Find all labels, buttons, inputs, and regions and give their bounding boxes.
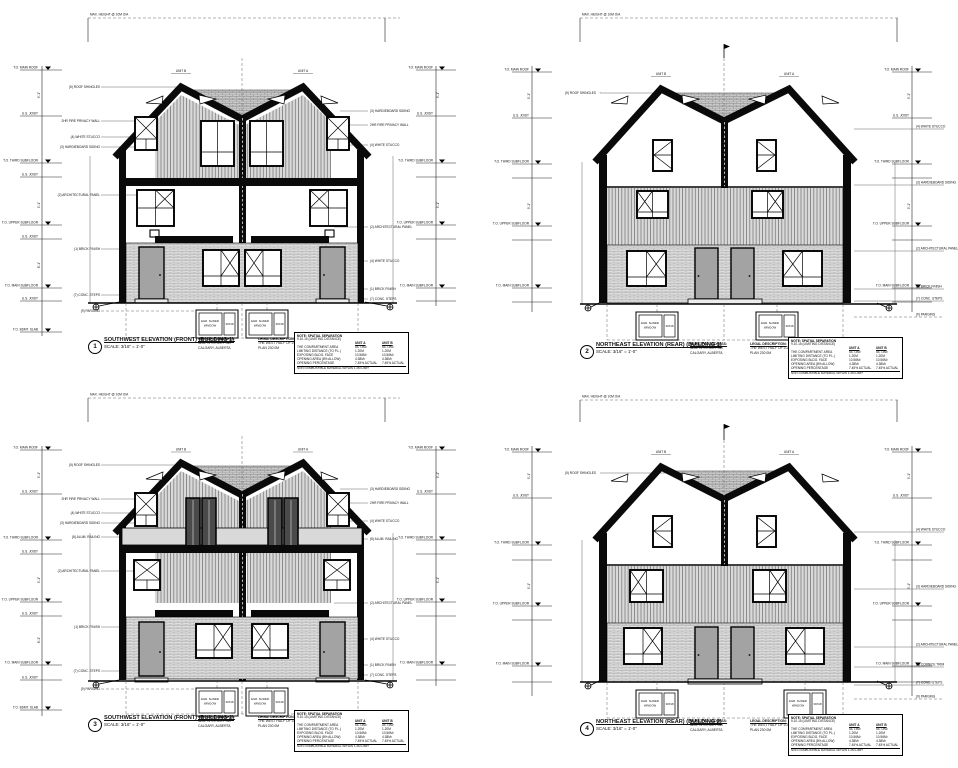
second-floor-window-right — [324, 560, 350, 590]
level-label: T.O. MAIN SUBFLOOR — [5, 284, 39, 288]
level-label: T.O. MAIN ROOF — [504, 68, 529, 72]
dim-label: 9'-1" — [37, 92, 41, 98]
roof-slope-arrow — [321, 472, 338, 480]
callout-label: (7) CONC. STEPS — [370, 673, 396, 677]
table-row: OPENING PERCENTAGE7.45% ACTUAL7.45% ACTU… — [791, 744, 900, 748]
second-floor-window-right — [310, 190, 347, 226]
level-label: T.O. MAIN ROOF — [884, 448, 909, 452]
egress-window-label: EGR. SLIDER — [201, 697, 219, 701]
spatial-separation-table: NOTE: SPATIAL SEPARATION 9.10.15 (LIMITI… — [788, 337, 903, 379]
separation-rows: THE COMPARTMENT AREA54.73M²54.73M²LIMITI… — [297, 724, 406, 744]
address-line: CALGARY, ALBERTA — [198, 346, 235, 350]
municipal-address-block: MUNICIPAL ADDRESS: 4204 75 STREET SW CAL… — [198, 715, 235, 728]
legal-line: THE WEST HALF OF LOT 2 — [750, 346, 793, 350]
right-dimension-column: T.O. MAIN ROOF U.S. JOIST T.O. THIRD SUB… — [397, 66, 456, 307]
building-drawing: EGR. SLIDER WINDOW 30X18 EGR. SLIDER WIN… — [88, 436, 397, 716]
egress-window-label: EGR. SLIDER — [251, 697, 269, 701]
building-drawing: EGR. SLIDER WINDOW 30X18 EGR. SLIDER WIN… — [580, 44, 897, 340]
dim-label: 9'-1" — [436, 577, 440, 583]
level-label: U.S. JOIST — [22, 112, 38, 116]
entry-door-left — [139, 622, 164, 676]
elevation-sheet: MAX. HEIGHT @ 10M O/A T.O. MAIN ROOF U.S… — [0, 0, 958, 768]
level-label: T.O. THIRD SUBFLOOR — [874, 160, 910, 164]
vent — [325, 230, 334, 237]
egress-window-label: EGR. SLIDER — [641, 321, 659, 325]
roof-slope-arrow — [822, 474, 839, 482]
rear-door-right — [731, 627, 754, 679]
callout-label: (4) WHITE STUCCO — [71, 511, 101, 515]
callout-label: (6) CORNICE TRIM — [916, 663, 944, 667]
separation-footer: NON COMBUSTIBLE MATERIAL WITHIN 1.2M LIM… — [791, 371, 900, 376]
level-label: U.S. JOIST — [22, 676, 38, 680]
municipal-address-block: MUNICIPAL ADDRESS: 4204 75 STREET SW CAL… — [198, 337, 235, 350]
main-floor-window-left — [196, 624, 232, 658]
third-floor-window-right — [250, 121, 283, 166]
detail-ref-bubble: 2 — [580, 345, 594, 359]
level-label: T.O. THIRD SUBFLOOR — [494, 160, 530, 164]
left-dimension-column: T.O. MAIN ROOF U.S. JOIST T.O. THIRD SUB… — [2, 66, 62, 337]
level-label: T.O. THIRD SUBFLOOR — [3, 536, 39, 540]
egress-window-size: 30X18 — [813, 702, 822, 706]
second-floor-window-left — [134, 560, 160, 590]
siding-band — [247, 553, 331, 603]
level-label: T.O. THIRD SUBFLOOR — [874, 541, 910, 545]
callout-label: (5) ROOF SHINGLES — [69, 463, 100, 467]
callout-label: (4) WHITE STUCCO — [71, 135, 101, 139]
attic-window-left — [135, 117, 157, 150]
level-label: U.S. JOIST — [513, 114, 529, 118]
egress-window-label: EGR. SLIDER — [201, 319, 219, 323]
dim-label: 9'-1" — [907, 583, 911, 589]
max-height-label: MAX. HEIGHT @ 10M O/A — [90, 393, 129, 397]
rear-door-right — [731, 248, 754, 299]
level-label: U.S. JOIST — [417, 490, 433, 494]
left-wall — [119, 526, 126, 680]
callout-label: (2) ARCHITECTURAL PANEL — [916, 643, 958, 647]
building-drawing: EGR. SLIDER WINDOW 30X18 EGR. SLIDER WIN… — [88, 58, 397, 338]
callout-label: (2) ARCHITECTURAL PANEL — [58, 569, 101, 573]
callout-label: (7) CONC. STEPS — [916, 297, 942, 301]
level-label: T.O. MAIN ROOF — [13, 446, 38, 450]
address-line: 4204 75 STREET SW — [690, 723, 727, 727]
dim-label: 9'-1" — [527, 203, 531, 209]
left-wall — [119, 150, 126, 303]
rear-door-left — [695, 627, 718, 679]
level-label: T.O. THIRD SUBFLOOR — [398, 536, 434, 540]
level-label: T.O. MAIN SUBFLOOR — [400, 661, 434, 665]
legal-line: PLAN 230 0M — [750, 351, 793, 355]
egress-window-label: WINDOW — [254, 702, 267, 706]
level-label: U.S. JOIST — [893, 494, 909, 498]
municipal-address-block: MUNICIPAL ADDRESS: 4204 75 STREET SW CAL… — [690, 342, 727, 355]
level-label: T.O. UPPER SUBFLOOR — [2, 221, 39, 225]
callout-label: (8) ALUM. RAILING — [72, 535, 101, 539]
roof-slope-arrow — [822, 96, 839, 104]
detail-ref-bubble: 4 — [580, 722, 594, 736]
callout-label: (1) BRICK FINISH — [74, 625, 101, 629]
right-dimension-column: T.O. MAIN ROOF U.S. JOIST T.O. THIRD SUB… — [873, 446, 932, 696]
elevation-drawings-canvas: MAX. HEIGHT @ 10M O/A T.O. MAIN ROOF U.S… — [0, 0, 958, 768]
callout-label: (3) HARDIEBOARD SIDING — [60, 521, 101, 525]
level-label: T.O. MAIN SUBFLOOR — [496, 284, 530, 288]
callout-label: 2HR FIRE PRIVACY WALL — [370, 123, 409, 127]
egress-window-label: WINDOW — [764, 326, 777, 330]
egress-window-label: WINDOW — [792, 704, 805, 708]
dim-label: 9'-1" — [527, 473, 531, 479]
spatial-separation-table: NOTE: SPATIAL SEPARATION 9.10.15 (LIMITI… — [294, 332, 409, 374]
dim-label: 8'-1" — [37, 637, 41, 643]
dim-label: 9'-1" — [436, 472, 440, 478]
callout-label: (1) BRICK FINISH — [370, 287, 397, 291]
address-line: 4204 75 STREET SW — [198, 719, 235, 723]
dim-label: 9'-1" — [907, 203, 911, 209]
left-dimension-column: T.O. MAIN ROOF U.S. JOIST T.O. THIRD SUB… — [493, 446, 552, 696]
level-label: T.O. MAIN SUBFLOOR — [876, 662, 910, 666]
siding-window-right — [752, 191, 783, 218]
roof-slope-arrow — [611, 474, 628, 482]
table-row: OPENING PERCENTAGE7.45% ACTUAL7.45% ACTU… — [791, 367, 900, 371]
egress-window-size: 30X18 — [275, 700, 284, 704]
unit-label: UNIT A — [298, 69, 309, 73]
egress-window-label: WINDOW — [644, 704, 657, 708]
callout-label: (4) WHITE STUCCO — [916, 528, 946, 532]
callout-label: (4) WHITE STUCCO — [370, 519, 400, 523]
level-label: T.O. MAIN ROOF — [408, 66, 433, 70]
vent — [150, 230, 159, 237]
separation-rows: THE COMPARTMENT AREA54.73M²54.73M²LIMITI… — [297, 346, 406, 366]
dim-label: 9'-1" — [907, 473, 911, 479]
right-dimension-column: T.O. MAIN ROOF U.S. JOIST T.O. THIRD SUB… — [397, 446, 456, 687]
callout-label: (4) WHITE STUCCO — [370, 259, 400, 263]
level-label: T.O. MAIN SUBFLOOR — [5, 661, 39, 665]
municipal-address-block: MUNICIPAL ADDRESS: 4204 75 STREET SW CAL… — [690, 719, 727, 732]
main-floor-window-right — [245, 250, 281, 286]
callout-label: (2) ARCHITECTURAL PANEL — [370, 601, 413, 605]
main-floor-window-right — [783, 251, 822, 286]
third-floor-window-left — [201, 121, 234, 166]
level-label: T.O. THIRD SUBFLOOR — [494, 541, 530, 545]
level-label: T.O. UPPER SUBFLOOR — [873, 222, 910, 226]
dim-label: 9'-1" — [37, 472, 41, 478]
egress-window-size: 30X18 — [665, 324, 674, 328]
callout-label: (2) ARCHITECTURAL PANEL — [916, 247, 958, 251]
level-label: U.S. JOIST — [893, 114, 909, 118]
egress-window-box: EGR. SLIDER WINDOW 30X18 — [246, 310, 288, 338]
callout-label: (8) ALUM. RAILING — [370, 537, 399, 541]
right-wall — [843, 155, 851, 303]
roof-slope-arrow — [611, 96, 628, 104]
callout-label: (5) ROOF SHINGLES — [565, 471, 596, 475]
level-label: T.O. MAIN ROOF — [408, 446, 433, 450]
dim-label: 9'-1" — [436, 92, 440, 98]
level-label: T.O. MAIN ROOF — [13, 66, 38, 70]
balcony-railing-band — [122, 528, 362, 545]
dim-label: 9'-1" — [907, 93, 911, 99]
siding-window-right — [753, 570, 786, 602]
spatial-separation-table: NOTE: SPATIAL SEPARATION 9.10.15 (LIMITI… — [294, 710, 409, 752]
upper-window-right — [757, 516, 776, 547]
dim-label: 9'-1" — [527, 93, 531, 99]
level-label: T.O. BSMT. SLAB — [13, 706, 38, 710]
level-label: T.O. UPPER SUBFLOOR — [2, 598, 39, 602]
level-label: U.S. JOIST — [22, 235, 38, 239]
level-label: U.S. JOIST — [22, 550, 38, 554]
callout-label: (9) PARGING — [916, 313, 936, 317]
egress-window-label: WINDOW — [204, 324, 217, 328]
rear-elevation-building2: MAX. HEIGHT @ 10M O/A T.O. MAIN ROOF U.S… — [493, 395, 958, 719]
siding-window-left — [630, 570, 663, 602]
separation-footer: NON COMBUSTIBLE MATERIAL WITHIN 1.2M LIM… — [297, 366, 406, 371]
main-floor-window-left — [203, 250, 239, 286]
egress-window-size: 30X18 — [225, 322, 234, 326]
legal-description-block: LEGAL DESCRIPTION: THE WEST HALF OF LOT … — [750, 342, 793, 355]
unit-label: UNIT B — [176, 448, 186, 452]
separation-rows: THE COMPARTMENT AREA54.73M²54.73M²LIMITI… — [791, 728, 900, 748]
level-label: T.O. MAIN SUBFLOOR — [876, 284, 910, 288]
roof-slope-arrow — [321, 96, 338, 104]
max-height-label: MAX. HEIGHT @ 10M O/A — [582, 13, 621, 17]
dim-label: 9'-1" — [37, 577, 41, 583]
attic-window-right — [327, 117, 349, 150]
separation-rows: THE COMPARTMENT AREA54.73M²54.73M²LIMITI… — [791, 351, 900, 371]
separation-footer: NON COMBUSTIBLE MATERIAL WITHIN 1.2M LIM… — [297, 744, 406, 749]
level-label: T.O. BSMT. SLAB — [13, 328, 38, 332]
callout-label: (1) BRICK FINISH — [916, 285, 943, 289]
dim-label: 9'-1" — [436, 202, 440, 208]
right-wall — [843, 533, 851, 682]
callout-label: (3) HARDIEBOARD SIDING — [60, 145, 101, 149]
level-label: U.S. JOIST — [22, 173, 38, 177]
callout-label: (4) WHITE STUCCO — [370, 637, 400, 641]
callout-label: (7) CONC. STEPS — [916, 681, 942, 685]
table-row: OPENING PERCENTAGE7.45% ACTUAL7.45% ACTU… — [297, 362, 406, 366]
egress-window-box: EGR. SLIDER WINDOW 30X18 — [196, 310, 238, 338]
roof-slope-arrow — [146, 472, 163, 480]
egress-window-box: EGR. SLIDER WINDOW 30X18 — [246, 688, 288, 716]
max-height-label: MAX. HEIGHT @ 10M O/A — [582, 395, 621, 399]
unit-label: UNIT B — [656, 72, 666, 76]
callout-label: 2HR FIRE PRIVACY WALL — [61, 119, 100, 123]
unit-label: UNIT A — [298, 448, 309, 452]
level-label: U.S. JOIST — [22, 612, 38, 616]
main-floor-window-left — [624, 628, 662, 664]
egress-window-size: 30X18 — [275, 322, 284, 326]
detail-ref-bubble: 1 — [88, 340, 102, 354]
second-floor-window-left — [137, 190, 174, 226]
dim-label: 8'-1" — [37, 262, 41, 268]
siding-window-left — [637, 191, 668, 218]
callout-label: (3) HARDIEBOARD SIDING — [916, 585, 957, 589]
floor-band — [126, 178, 358, 186]
level-label: T.O. MAIN ROOF — [504, 448, 529, 452]
concrete-steps — [688, 299, 762, 304]
egress-window-label: WINDOW — [204, 702, 217, 706]
roof-slope-arrow — [146, 96, 163, 104]
upper-window-left — [653, 516, 672, 547]
left-dimension-column: T.O. MAIN ROOF U.S. JOIST T.O. THIRD SUB… — [493, 66, 552, 312]
callout-label: (1) BRICK FINISH — [74, 247, 101, 251]
main-floor-window-right — [252, 624, 288, 658]
address-line: CALGARY, ALBERTA — [690, 728, 727, 732]
separation-footer: NON COMBUSTIBLE MATERIAL WITHIN 1.2M LIM… — [791, 748, 900, 753]
callout-label: (2) ARCHITECTURAL PANEL — [370, 225, 413, 229]
egress-window-size: 30X18 — [665, 702, 674, 706]
level-label: U.S. JOIST — [417, 112, 433, 116]
address-line: 4204 75 STREET SW — [198, 341, 235, 345]
egress-window-box: EGR. SLIDER WINDOW 30X18 — [196, 688, 238, 716]
left-dimension-column: T.O. MAIN ROOF U.S. JOIST T.O. THIRD SUB… — [2, 446, 62, 717]
level-label: T.O. UPPER SUBFLOOR — [493, 602, 530, 606]
egress-window-label: EGR. SLIDER — [251, 319, 269, 323]
main-floor-window-left — [627, 251, 666, 286]
left-wall — [599, 155, 607, 303]
callout-label: (5) ROOF SHINGLES — [565, 91, 596, 95]
callout-label: 2HR FIRE PRIVACY WALL — [370, 501, 409, 505]
attic-window-right — [327, 493, 349, 526]
upper-window-right — [757, 140, 776, 171]
egress-window-box: EGR. SLIDER WINDOW 30X18 — [756, 312, 798, 340]
callout-label: (4) WHITE STUCCO — [916, 125, 946, 129]
building-drawing: EGR. SLIDER WINDOW 30X18 EGR. SLIDER WIN… — [580, 424, 897, 718]
level-label: T.O. MAIN ROOF — [884, 68, 909, 72]
attic-window-left — [135, 493, 157, 526]
egress-window-size: 30X18 — [785, 324, 794, 328]
level-label: T.O. UPPER SUBFLOOR — [873, 602, 910, 606]
siding-band — [155, 553, 239, 603]
egress-window-size: 30X18 — [225, 700, 234, 704]
address-line: 4204 75 STREET SW — [690, 346, 727, 350]
callout-label: (4) WHITE STUCCO — [370, 143, 400, 147]
spatial-separation-table: NOTE: SPATIAL SEPARATION 9.10.15 (LIMITI… — [788, 714, 903, 756]
egress-window-box: EGR. SLIDER WINDOW 30X18 — [636, 312, 678, 340]
level-label: T.O. MAIN SUBFLOOR — [496, 662, 530, 666]
unit-label: UNIT B — [176, 69, 186, 73]
detail-ref-bubble: 3 — [88, 718, 102, 732]
callout-label: (3) HARDIEBOARD SIDING — [370, 487, 411, 491]
callout-label: (7) CONC. STEPS — [74, 293, 100, 297]
callout-label: (7) CONC. STEPS — [74, 669, 100, 673]
egress-window-label: EGR. SLIDER — [789, 699, 807, 703]
callout-label: (3) HARDIEBOARD SIDING — [370, 109, 411, 113]
legal-line: PLAN 230 0M — [750, 728, 793, 732]
dim-label: 9'-1" — [527, 583, 531, 589]
level-label: U.S. JOIST — [22, 297, 38, 301]
egress-window-label: WINDOW — [254, 324, 267, 328]
callout-label: (7) CONC. STEPS — [370, 297, 396, 301]
right-dimension-column: T.O. MAIN ROOF U.S. JOIST T.O. THIRD SUB… — [873, 66, 932, 312]
level-label: T.O. UPPER SUBFLOOR — [397, 221, 434, 225]
egress-window-box: EGR. SLIDER WINDOW 30X18 — [636, 690, 678, 718]
address-line: CALGARY, ALBERTA — [690, 351, 727, 355]
rear-door-left — [695, 248, 718, 299]
egress-window-label: EGR. SLIDER — [641, 699, 659, 703]
upper-window-left — [653, 140, 672, 171]
callout-label: (2) ARCHITECTURAL PANEL — [58, 193, 101, 197]
egress-window-label: WINDOW — [644, 326, 657, 330]
front-elevation-building2: MAX. HEIGHT @ 10M O/A T.O. MAIN ROOF U.S… — [2, 393, 456, 717]
front-elevation-building1: MAX. HEIGHT @ 10M O/A T.O. MAIN ROOF U.S… — [2, 13, 456, 339]
callout-label: (3) HARDIEBOARD SIDING — [916, 181, 957, 185]
level-label: U.S. JOIST — [22, 490, 38, 494]
table-row: OPENING PERCENTAGE7.45% ACTUAL7.45% ACTU… — [297, 740, 406, 744]
unit-label: UNIT B — [656, 450, 666, 454]
egress-window-label: EGR. SLIDER — [761, 321, 779, 325]
left-wall — [599, 533, 607, 682]
address-line: CALGARY, ALBERTA — [198, 724, 235, 728]
callout-label: (5) ROOF SHINGLES — [69, 85, 100, 89]
entry-door-right — [320, 247, 345, 299]
floor-band — [126, 545, 358, 553]
entry-door-right — [320, 622, 345, 676]
legal-line: THE WEST HALF OF LOT 2 — [750, 723, 793, 727]
rear-elevation-building1: MAX. HEIGHT @ 10M O/A T.O. MAIN ROOF U.S… — [493, 13, 958, 341]
legal-description-block: LEGAL DESCRIPTION: THE WEST HALF OF LOT … — [750, 719, 793, 732]
callout-label: 2HR FIRE PRIVACY WALL — [61, 497, 100, 501]
max-height-label: MAX. HEIGHT @ 10M O/A — [90, 13, 129, 17]
level-label: U.S. JOIST — [513, 494, 529, 498]
main-floor-window-right — [786, 628, 824, 664]
entry-door-left — [139, 247, 164, 299]
level-label: T.O. THIRD SUBFLOOR — [398, 159, 434, 163]
dim-label: 9'-1" — [37, 202, 41, 208]
level-label: T.O. THIRD SUBFLOOR — [3, 159, 39, 163]
unit-label: UNIT A — [784, 450, 795, 454]
unit-label: UNIT A — [784, 72, 795, 76]
level-label: T.O. MAIN SUBFLOOR — [400, 284, 434, 288]
callout-label: (1) BRICK FINISH — [370, 663, 397, 667]
level-label: T.O. UPPER SUBFLOOR — [493, 222, 530, 226]
callout-label: (9) PARGING — [916, 695, 936, 699]
